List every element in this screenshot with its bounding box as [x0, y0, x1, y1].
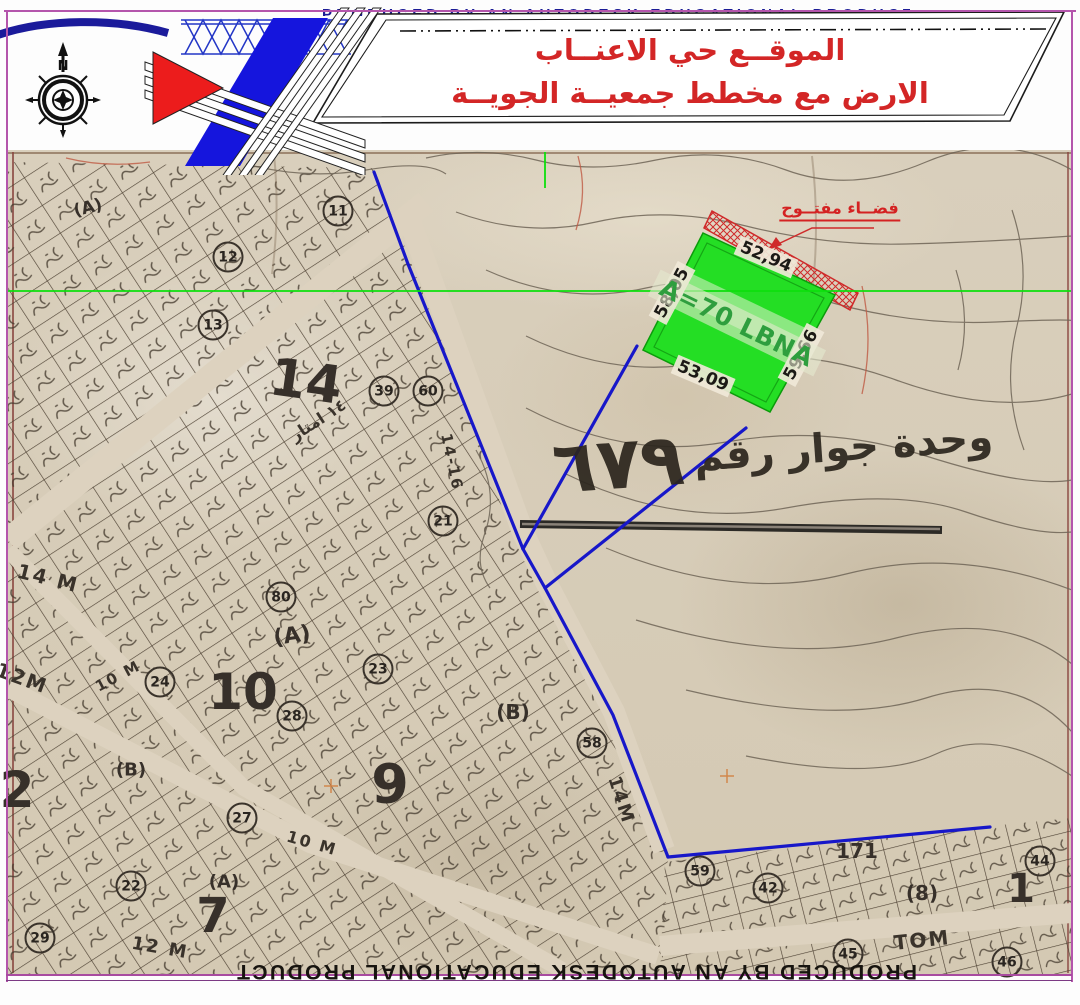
- map-scan: [6, 150, 1072, 975]
- compass-rose: N: [25, 42, 101, 138]
- neighborhood-text: وحدة جوار رقم: [693, 417, 995, 478]
- leader-line: [776, 228, 874, 245]
- highlighted-plot: [643, 211, 874, 412]
- sheet-title-line1: الموقــع حي الاعنــاب: [340, 33, 1040, 67]
- autodesk-banner-top: PRODUCED BY AN AUTODESK EDUCATIONAL PROD…: [322, 4, 910, 16]
- open-space-label: فضــاء مفتــوح: [779, 199, 900, 222]
- neighborhood-number: ٦٧٩: [550, 423, 687, 504]
- blue-band: [185, 18, 328, 166]
- compass-north-label: N: [58, 59, 69, 74]
- swoosh-ornament: [0, 22, 168, 36]
- red-triangle: [153, 52, 223, 124]
- autodesk-banner-bottom: PRODUCED BY AN AUTODESK EDUCATIONAL PROD…: [283, 959, 917, 983]
- road-bar: [520, 524, 942, 530]
- cadastral-map-sheet: PRODUCED BY AN AUTODESK EDUCATIONAL PROD…: [0, 0, 1080, 1005]
- dash-dot-rule: [400, 29, 1048, 31]
- map-canvas: [6, 150, 1072, 975]
- autodesk-banner-top-text: PRODUCED BY AN AUTODESK EDUCATIONAL PROD…: [322, 6, 910, 16]
- north-arrow: [58, 42, 68, 56]
- sheet-title-line2: الارض مع مخطط جمعيــة الجويــة: [340, 76, 1040, 110]
- lattice-ornament: [181, 20, 351, 54]
